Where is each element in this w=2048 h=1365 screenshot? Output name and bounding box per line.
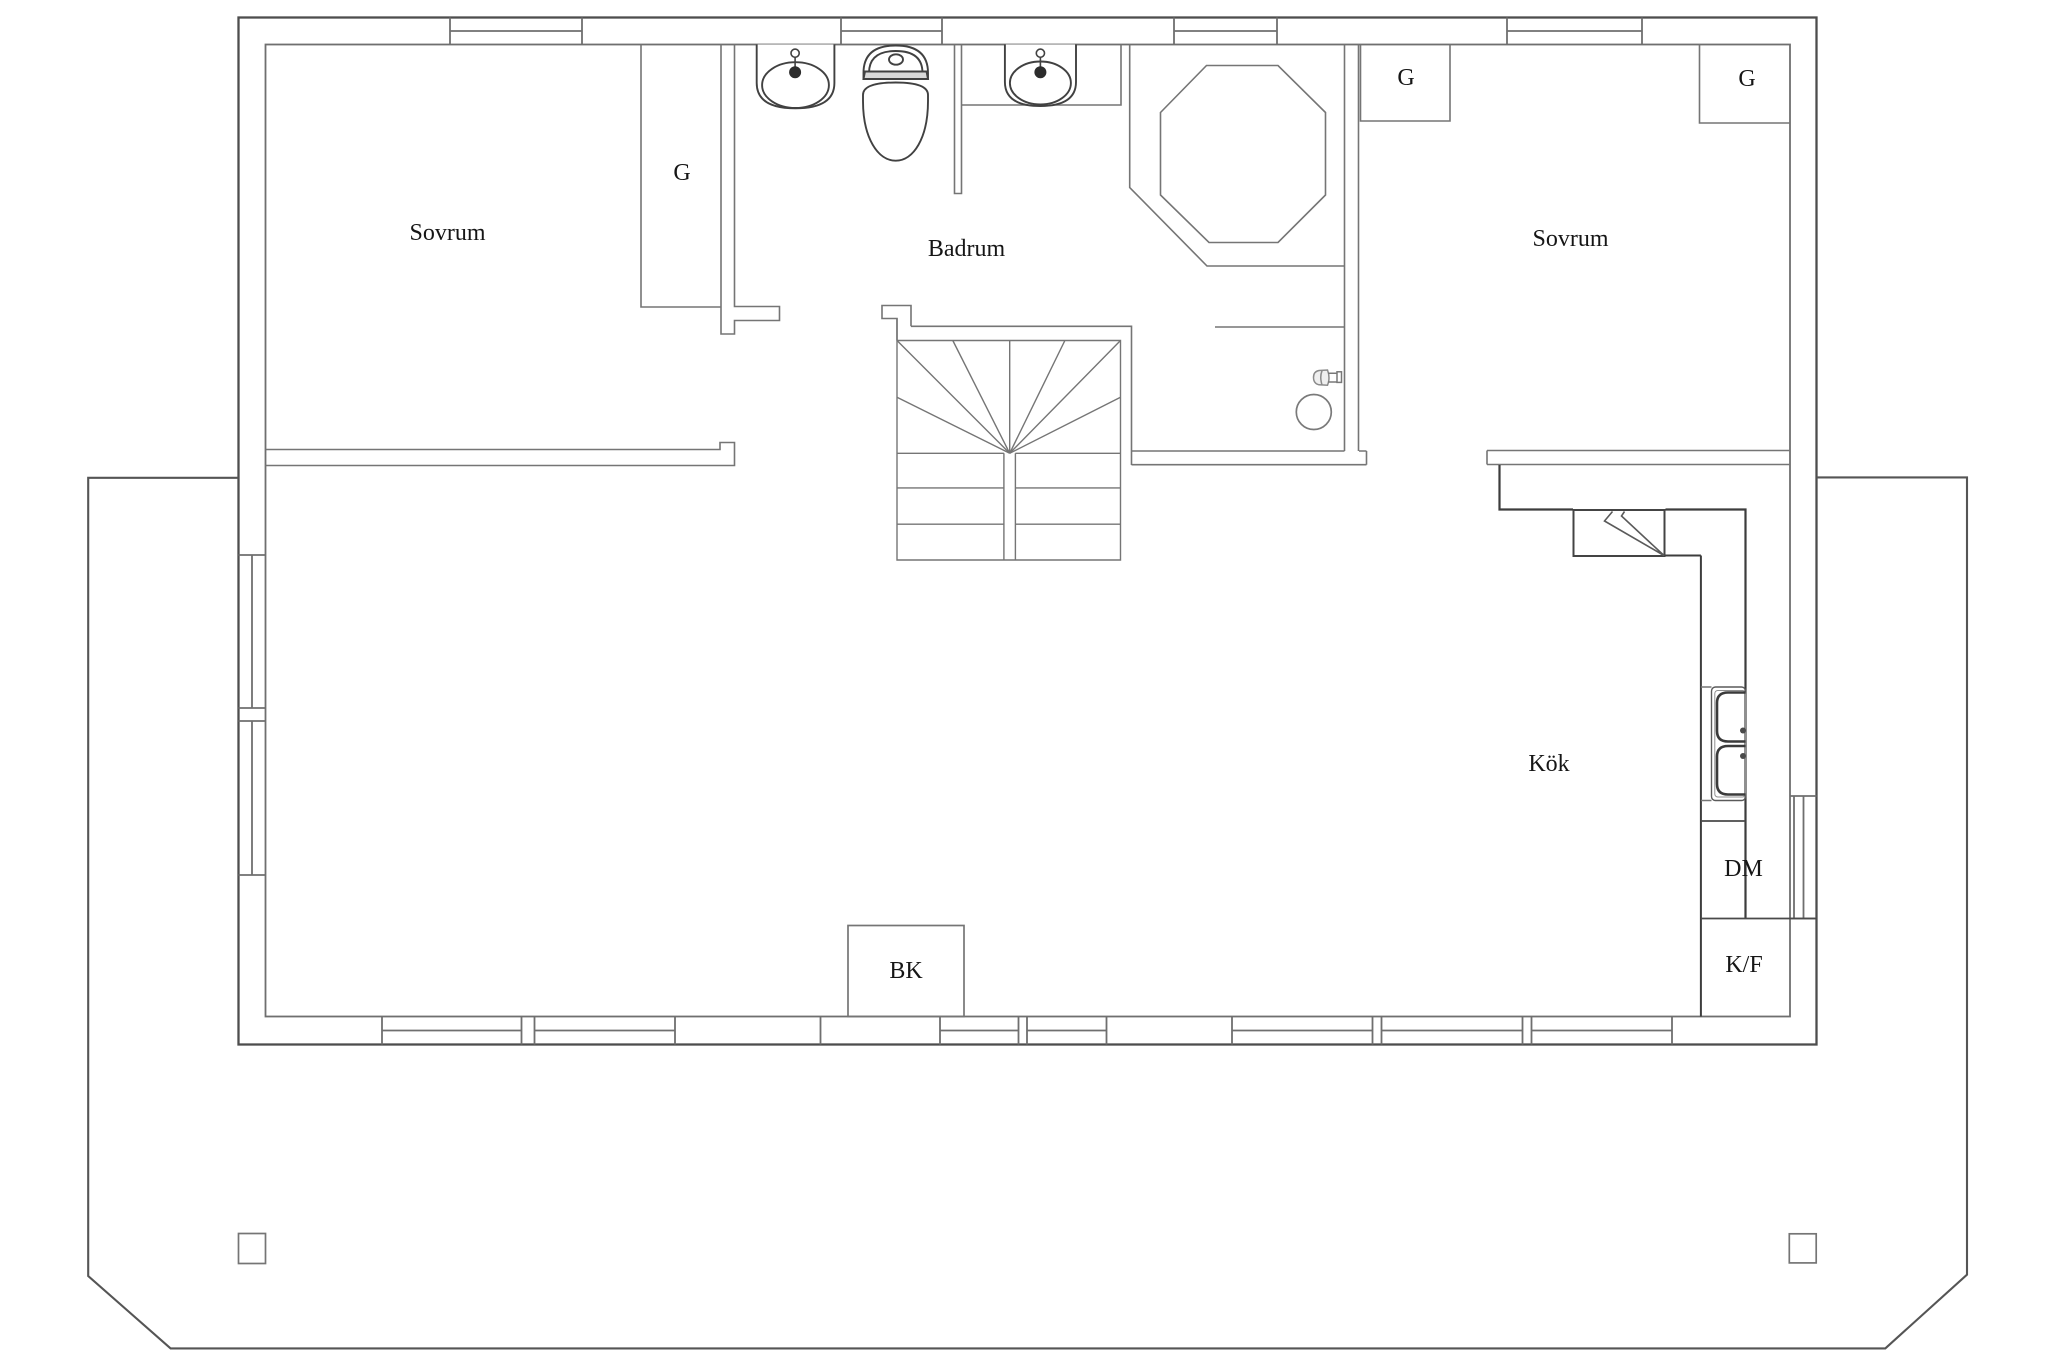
svg-text:Sovrum: Sovrum (1532, 226, 1608, 252)
svg-text:Badrum: Badrum (928, 236, 1006, 262)
svg-text:K/F: K/F (1725, 952, 1762, 978)
svg-text:G: G (673, 160, 690, 186)
svg-text:G: G (1397, 65, 1414, 91)
svg-text:Kök: Kök (1528, 751, 1569, 777)
svg-text:BK: BK (889, 958, 923, 984)
svg-text:G: G (1738, 66, 1755, 92)
svg-text:DM: DM (1724, 856, 1763, 882)
svg-text:Sovrum: Sovrum (409, 220, 485, 246)
